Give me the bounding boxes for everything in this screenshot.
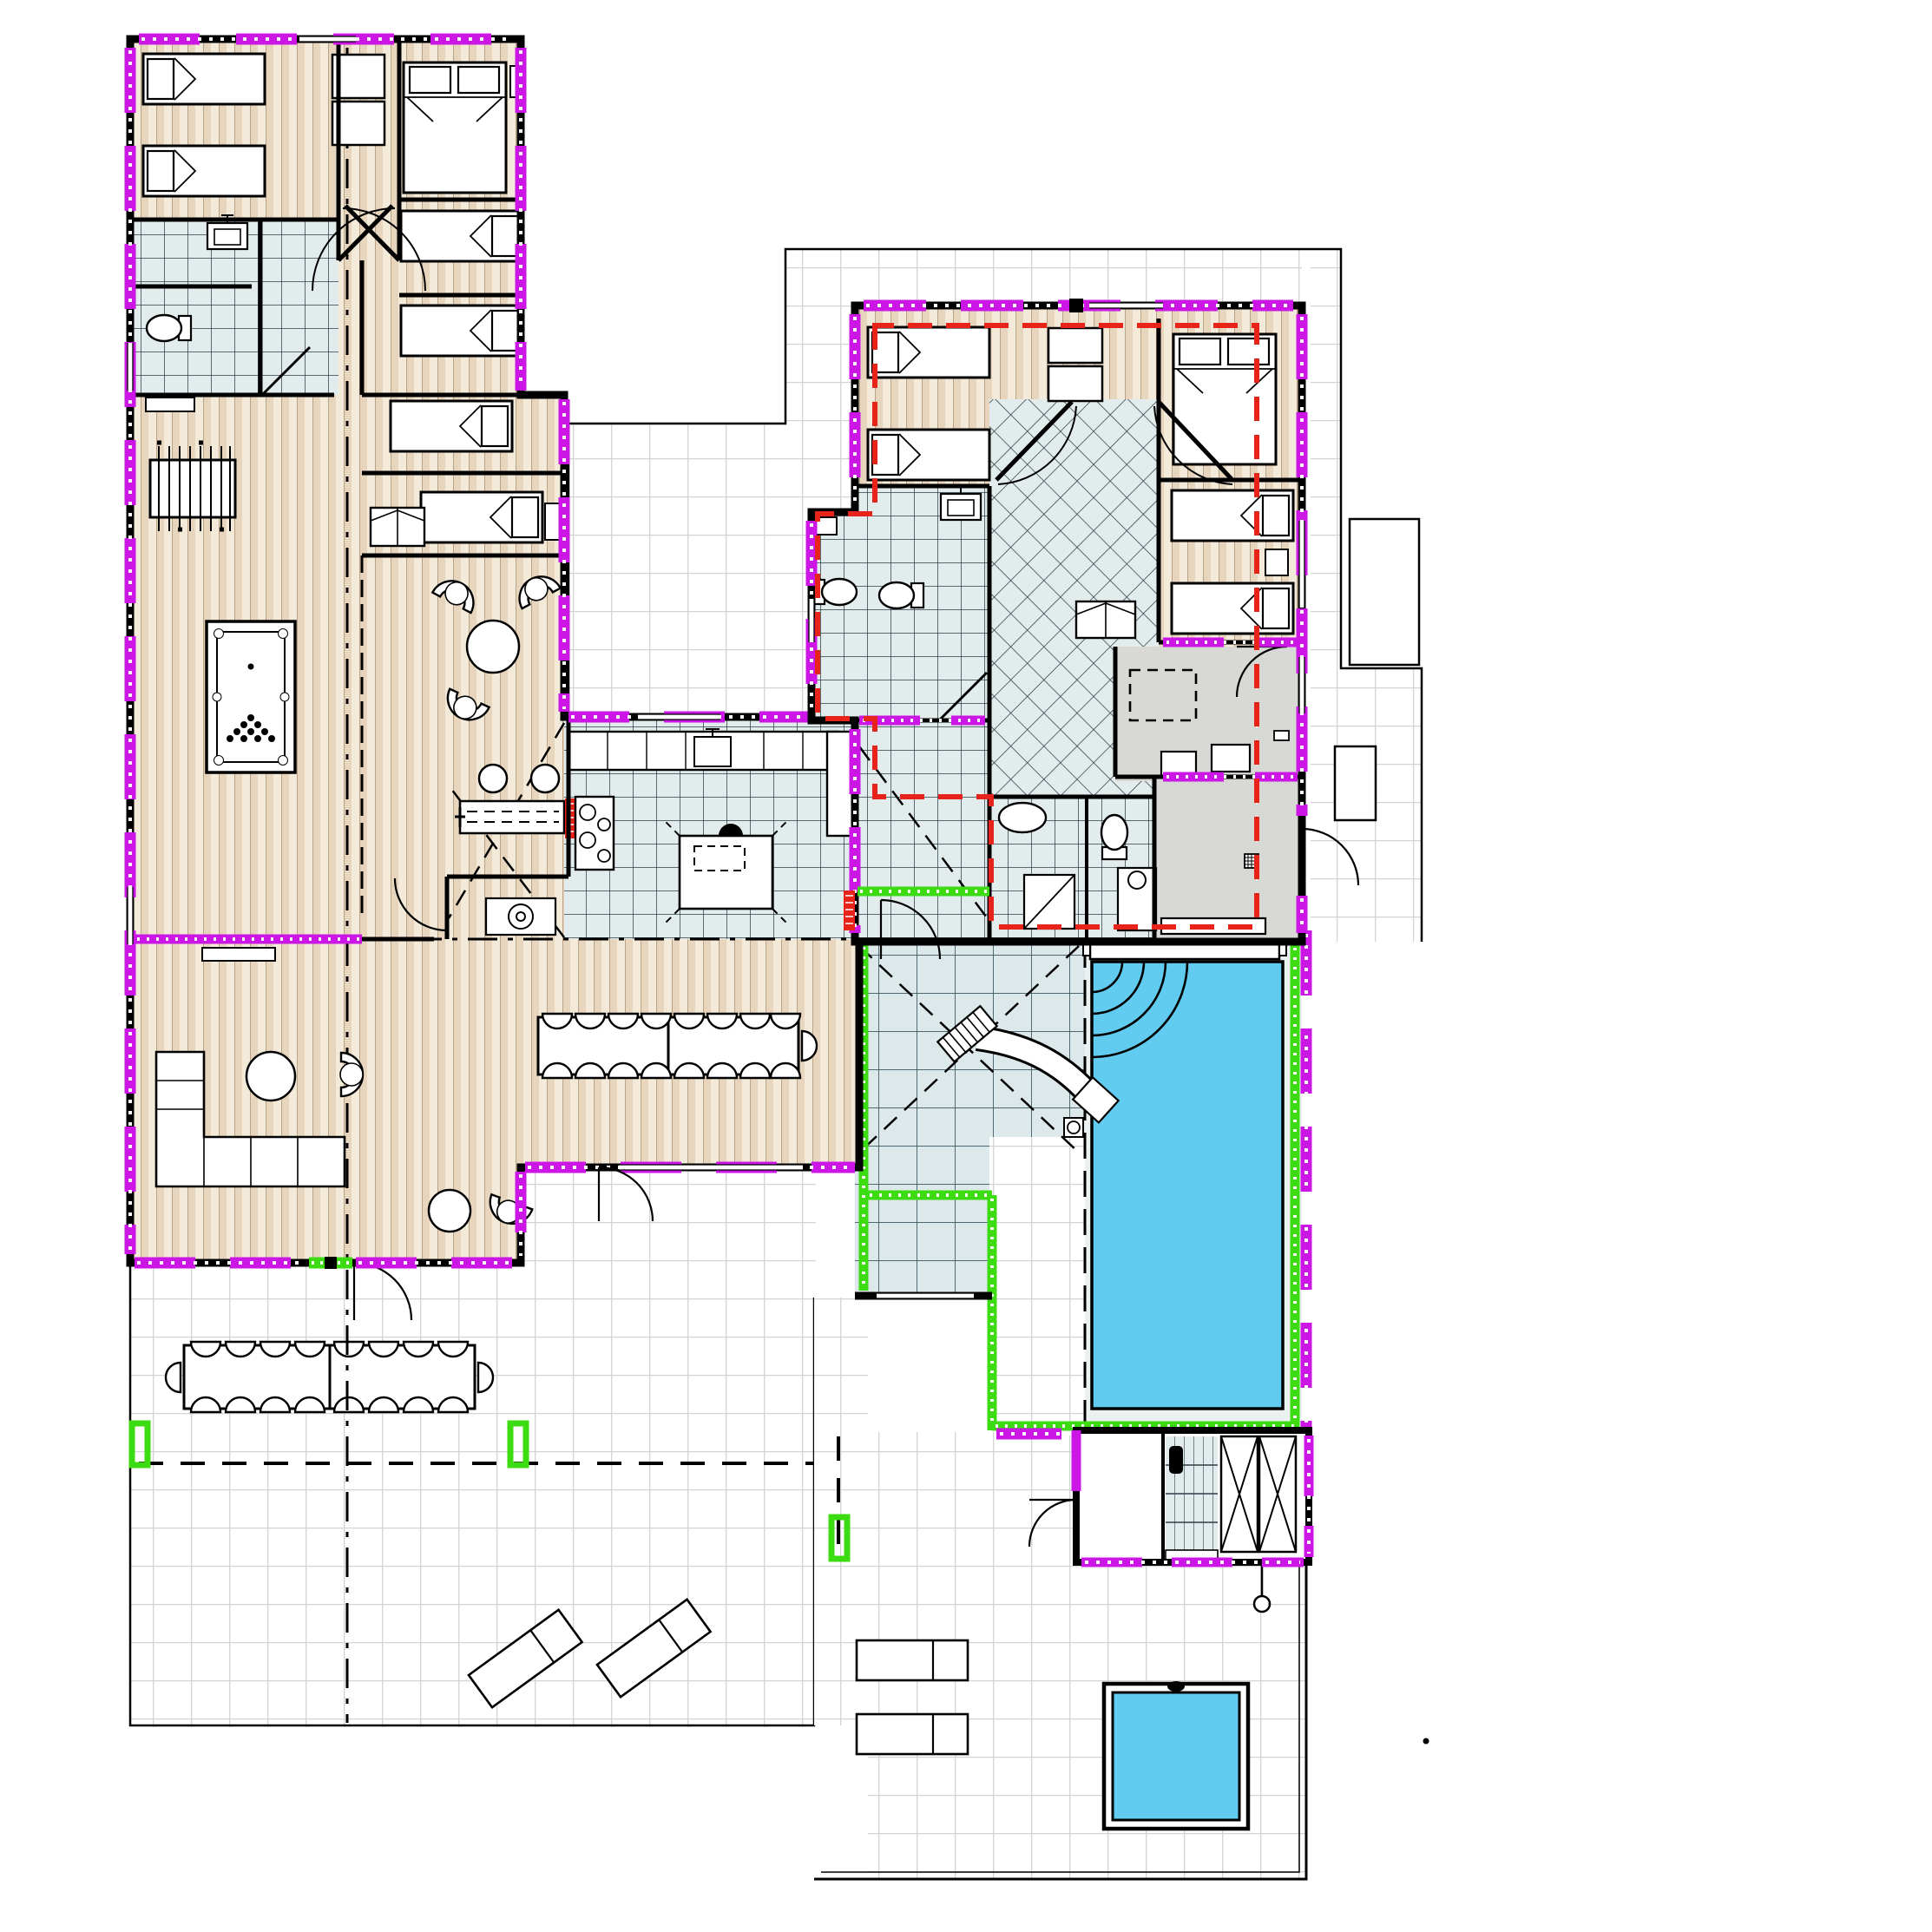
stool (479, 765, 507, 792)
sun-lounger (857, 1714, 968, 1754)
single-bed (868, 327, 989, 378)
floor-plan-drawing (0, 0, 1932, 1932)
sink (999, 803, 1046, 832)
toilet (879, 582, 923, 608)
equipment-pad (1350, 519, 1419, 665)
single-bed (421, 492, 542, 542)
stool (531, 765, 559, 792)
billiard-table (207, 621, 295, 772)
cooktop (575, 797, 614, 870)
toilet (147, 315, 191, 341)
single-bed (868, 430, 989, 480)
single-bed (1172, 490, 1293, 541)
pouf (429, 1190, 470, 1232)
double-bed (1173, 334, 1276, 464)
covered-pool-terrace (855, 942, 989, 1293)
equipment-marker (844, 890, 855, 930)
closet (1048, 328, 1102, 363)
coffee-table (246, 1052, 295, 1101)
single-bed (401, 211, 522, 261)
round-table (467, 621, 519, 673)
terrace-bench (1335, 746, 1376, 820)
outdoor-dining-table (166, 1342, 493, 1412)
sideboard (202, 948, 275, 961)
wardrobe (1076, 601, 1135, 638)
single-bed (143, 146, 265, 196)
wardrobe (371, 508, 424, 546)
sideboard-dashed (455, 801, 564, 833)
closet (1048, 366, 1102, 401)
terrace-door-green (309, 1257, 352, 1269)
nightstand (1265, 549, 1288, 575)
single-bed (143, 54, 265, 104)
outdoor-shower-point (1254, 1596, 1270, 1612)
laundry-floor (1115, 647, 1302, 781)
sun-lounger (857, 1640, 968, 1680)
indoor-dining-table (538, 1014, 817, 1078)
chimney (1069, 299, 1083, 312)
toilet (1101, 815, 1127, 859)
kitchen-island (664, 820, 788, 924)
pool-yard (855, 872, 1306, 1434)
swimming-pool (1064, 942, 1286, 1409)
floor-plan-canvas (0, 0, 1932, 1932)
sauna-stove (1169, 1446, 1183, 1474)
double-bed (404, 62, 506, 193)
single-bed (401, 306, 522, 356)
cabinet (146, 398, 194, 411)
right-wing (809, 299, 1358, 959)
appliance (1212, 745, 1250, 772)
single-bed (391, 401, 512, 451)
single-bed (1172, 583, 1293, 634)
jacuzzi (1104, 1681, 1248, 1829)
survey-dot (1423, 1738, 1429, 1745)
